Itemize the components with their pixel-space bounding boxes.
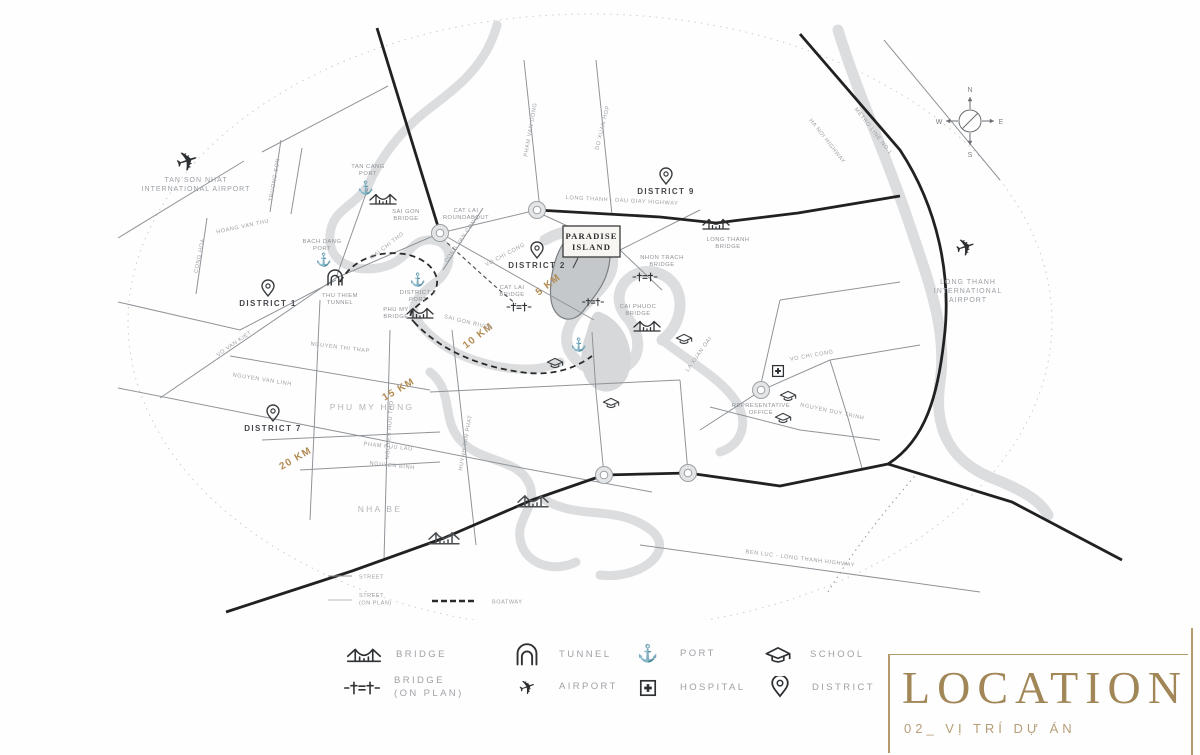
road-label: DO XUAN HOP: [595, 105, 612, 151]
port-icon: ⚓: [626, 644, 670, 664]
legend-label-tunnel: TUNNEL: [559, 649, 611, 662]
road-label: HA NOI HIGHWAY: [807, 118, 846, 165]
port-icon: ⚓: [316, 252, 332, 267]
cat-lai-roundabout-label-2: ROUNDABOUT: [443, 215, 489, 221]
tan-son-nhat-label-1: TAN SON NHAT: [164, 177, 227, 184]
district-1-label: DISTRICT 1: [239, 299, 297, 308]
road-label: PHAM VAN DONG: [523, 102, 538, 157]
tunnel-icon: [505, 643, 549, 667]
district-9-label: DISTRICT 9: [637, 187, 695, 196]
long-thanh-bridge-label-1: LONG THANH: [707, 237, 750, 243]
sai-gon-bridge-label-1: SAI GON: [392, 209, 420, 215]
port-icon: ⚓: [410, 272, 426, 287]
airport-icon: ✈: [505, 675, 549, 700]
cat-lai-bridge-label-1: CAT LAI: [500, 285, 525, 291]
roundabout-icon: [753, 382, 770, 399]
compass-s: S: [968, 152, 973, 159]
compass-e: E: [999, 119, 1004, 126]
port-icon: ⚓: [358, 180, 374, 195]
map-mini-legend: STREET STREET (ON PLAN) BOATWAY: [328, 575, 522, 607]
long-thanh-bridge-label-2: BRIDGE: [715, 244, 740, 250]
distance-ring: [128, 14, 1052, 620]
school-icon: [780, 391, 795, 400]
boatway-legend-label: BOATWAY: [492, 600, 522, 606]
hospital-icon: [773, 366, 784, 377]
thu-thiem-tunnel-label-2: TUNNEL: [327, 300, 353, 306]
compass-w: W: [936, 119, 943, 126]
bach-dang-port-label-1: BACH DANG: [303, 239, 342, 245]
sai-gon-bridge-label-2: BRIDGE: [393, 216, 418, 222]
phu-my-bridge-label-2: BRIDGE: [383, 314, 408, 320]
nha-be-label: NHA BE: [358, 504, 402, 514]
district-pin-icon: [758, 676, 802, 700]
bridge-on-plan-icon: [507, 303, 531, 311]
legend-item-port: ⚓ PORT: [626, 644, 716, 664]
airport-icon: ✈: [172, 144, 203, 180]
district2-port-label-1: DISTRICT 2: [400, 290, 436, 296]
tan-cang-port-label-2: PORT: [359, 171, 377, 177]
cat-lai-roundabout-label-1: CAT LAI: [454, 208, 479, 214]
legend-item-school: SCHOOL: [756, 645, 865, 665]
legend-item-bridge-on-plan: BRIDGE (ON PLAN): [340, 675, 464, 701]
long-thanh-label-3: AIRPORT: [949, 297, 987, 304]
street-on-plan-legend-label-1: STREET: [359, 593, 384, 599]
legend-label-port: PORT: [680, 648, 716, 661]
road-label: HOANG VAN THU: [216, 218, 270, 235]
compass-n: N: [967, 87, 972, 94]
hospital-icon: [626, 678, 670, 698]
road-label: NGUYEN BINH: [369, 461, 415, 472]
road-label: VO VAN KIET: [216, 330, 253, 359]
legend-label-bridge-on-plan: BRIDGE (ON PLAN): [394, 675, 464, 701]
road-label: DONG VAN CONG: [444, 215, 481, 264]
location-page: ⚓ ⚓ ⚓ ⚓ ✈ ✈ N E S W PARADISE ISLAND TAN …: [0, 0, 1200, 755]
bridge-icon: [370, 195, 396, 205]
nhon-trach-bridge-label-1: NHON TRACH: [640, 255, 684, 261]
legend-item-district: DISTRICT: [758, 676, 875, 700]
representative-office-label-2: OFFICE: [749, 410, 773, 416]
district-pin-icon: [262, 280, 274, 296]
title-block: LOCATION 02_ VỊ TRÍ DỰ ÁN: [888, 654, 1188, 755]
road-label: NGUYEN THI THAP: [310, 341, 370, 354]
school-icon: [603, 398, 618, 407]
compass-rose: N E S W: [936, 87, 1004, 159]
nhon-trach-bridge-label-2: BRIDGE: [649, 262, 674, 268]
road-label: TRUONG SON: [268, 158, 282, 202]
roundabout-icon: [432, 225, 449, 242]
road-label: NGUYEN DUY TRINH: [800, 402, 865, 421]
bridge-icon: [703, 220, 729, 230]
road-label: LONG THANH - DAU GIAY HIGHWAY: [566, 195, 679, 207]
legend-label-hospital: HOSPITAL: [680, 682, 745, 695]
legend-label-school: SCHOOL: [810, 649, 865, 662]
ring-15km-label: 15 KM: [381, 376, 417, 403]
street-legend-label: STREET: [359, 575, 384, 581]
bridge-icon: [342, 645, 386, 665]
district-pin-icon: [660, 168, 672, 184]
school-icon: [775, 413, 790, 422]
district2-port-label-2: PORT: [409, 297, 427, 303]
roundabout-icon: [680, 465, 697, 482]
roundabout-icon: [529, 202, 546, 219]
legend-label-airport: AIRPORT: [559, 681, 618, 694]
cai-phuoc-bridge-label-2: BRIDGE: [625, 311, 650, 317]
district-pin-icon: [531, 242, 543, 258]
legend-label-bridge: BRIDGE: [396, 649, 447, 662]
roundabout-icon: [596, 467, 613, 484]
airport-icon: ✈: [952, 232, 979, 264]
school-icon: [756, 645, 800, 665]
page-subtitle: 02_ VỊ TRÍ DỰ ÁN: [904, 721, 1076, 736]
road-label: BEN LUC - LONG THANH HIGHWAY: [745, 549, 855, 568]
cai-phuoc-bridge-label-1: CAI PHUOC: [620, 304, 657, 310]
cat-lai-bridge-label-2: BRIDGE: [499, 292, 524, 298]
legend-item-tunnel: TUNNEL: [505, 643, 611, 667]
ring-20km-label: 20 KM: [278, 445, 314, 472]
school-icon: [676, 334, 691, 343]
port-icon: ⚓: [571, 337, 587, 352]
thu-thiem-tunnel-label-1: THU THIEM: [322, 293, 358, 299]
long-thanh-label-1: LONG THANH: [940, 279, 996, 286]
bach-dang-port-label-2: PORT: [313, 246, 331, 252]
page-title: LOCATION: [902, 661, 1188, 714]
long-thanh-label-2: INTERNATIONAL: [934, 288, 1003, 295]
tan-cang-port-label-1: TAN CANG: [351, 164, 385, 170]
phu-my-hung-label: PHU MY HUNG: [330, 402, 415, 412]
district-2-label: DISTRICT 2: [508, 261, 566, 270]
project-name-line2: ISLAND: [572, 242, 611, 252]
legend-item-airport: ✈ AIRPORT: [505, 675, 618, 700]
street-on-plan-legend-label-2: (ON PLAN): [359, 601, 392, 607]
bridge-on-plan-icon: [340, 680, 384, 696]
road-label: NGUYEN VAN LINH: [232, 372, 292, 387]
legend-item-bridge: BRIDGE: [342, 645, 447, 665]
district-7-label: DISTRICT 7: [244, 424, 302, 433]
title-block-left-line: [888, 655, 890, 753]
plane-glyph: ✈: [515, 673, 539, 702]
legend-label-district: DISTRICT: [812, 682, 875, 695]
project-name-line1: PARADISE: [565, 231, 617, 241]
title-block-right-line: [1191, 628, 1193, 755]
tan-son-nhat-label-2: INTERNATIONAL AIRPORT: [142, 186, 251, 193]
legend-label-bridge-on-plan-1: BRIDGE: [394, 675, 464, 688]
anchor-glyph: ⚓: [637, 644, 658, 664]
phu-my-bridge-label-1: PHU MY: [383, 307, 409, 313]
road-label: CONG HOA: [193, 238, 206, 274]
legend-label-bridge-on-plan-2: (ON PLAN): [394, 688, 464, 701]
legend-item-hospital: HOSPITAL: [626, 678, 745, 698]
location-map: ⚓ ⚓ ⚓ ⚓ ✈ ✈ N E S W PARADISE ISLAND TAN …: [0, 0, 1200, 620]
representative-office-label-1: REPRESENTATIVE: [732, 403, 790, 409]
